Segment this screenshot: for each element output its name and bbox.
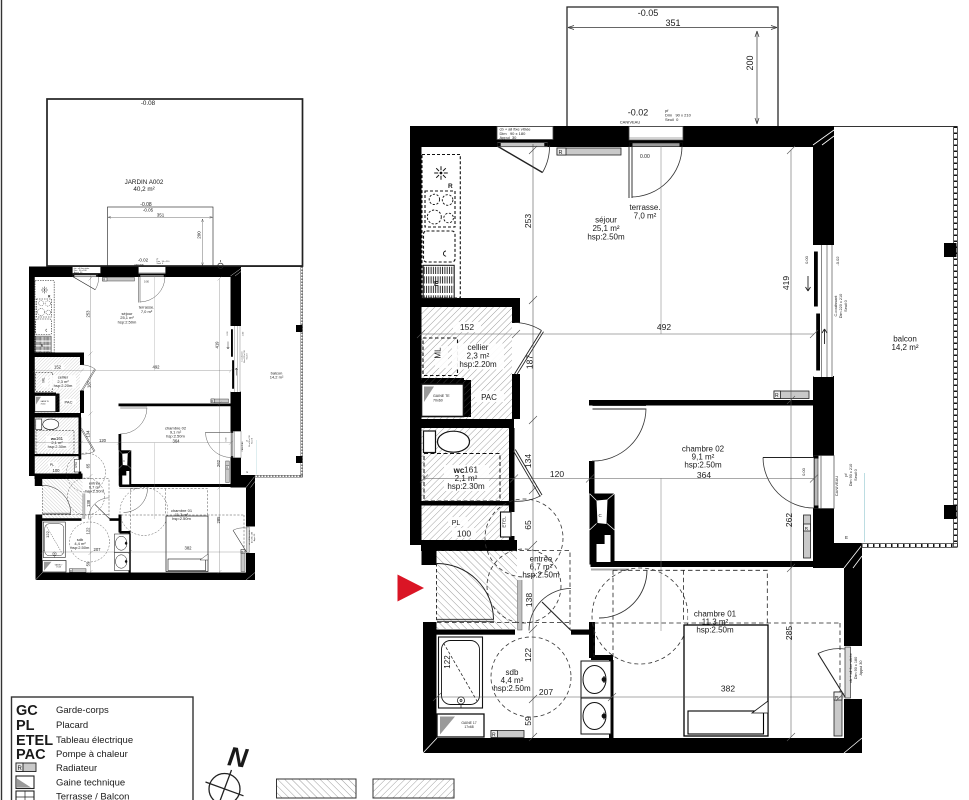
- svg-text:hsp:2.50m: hsp:2.50m: [493, 684, 531, 693]
- svg-text:207: 207: [539, 687, 553, 697]
- svg-text:120: 120: [550, 469, 564, 479]
- svg-text:-0.05: -0.05: [638, 8, 659, 18]
- svg-text:E: E: [434, 281, 439, 288]
- svg-text:351: 351: [665, 18, 680, 28]
- svg-text:JARDIN A002: JARDIN A002: [125, 179, 164, 186]
- svg-text:Seuil 0: Seuil 0: [665, 117, 679, 122]
- svg-text:Radiateur: Radiateur: [56, 763, 97, 774]
- svg-text:40,2 m²: 40,2 m²: [133, 186, 154, 193]
- svg-text:0.00: 0.00: [640, 154, 650, 160]
- svg-text:-0.02: -0.02: [628, 108, 649, 118]
- svg-text:382: 382: [721, 684, 735, 694]
- svg-text:Seuil 0: Seuil 0: [854, 469, 858, 481]
- svg-text:CANIVEAU: CANIVEAU: [620, 120, 641, 125]
- svg-text:152: 152: [460, 322, 474, 332]
- svg-text:hsp:2.50m: hsp:2.50m: [522, 571, 560, 580]
- svg-text:492: 492: [657, 322, 671, 332]
- svg-text:GAINE TE: GAINE TE: [433, 394, 450, 398]
- svg-text:0.00: 0.00: [804, 255, 809, 264]
- svg-text:PAC: PAC: [481, 393, 497, 402]
- svg-text:GC: GC: [16, 703, 38, 719]
- svg-text:PL: PL: [452, 520, 461, 527]
- svg-text:hsp:2.30m: hsp:2.30m: [447, 482, 485, 491]
- svg-text:Garde-corps: Garde-corps: [56, 705, 109, 716]
- svg-text:122: 122: [523, 648, 533, 662]
- svg-text:122: 122: [443, 655, 452, 669]
- svg-text:187: 187: [525, 355, 535, 369]
- svg-text:Tableau électrique: Tableau électrique: [56, 735, 133, 746]
- svg-text:14,2 m²: 14,2 m²: [891, 343, 918, 352]
- svg-text:0.00: 0.00: [801, 467, 806, 476]
- svg-text:ML: ML: [434, 347, 443, 359]
- svg-text:262: 262: [784, 513, 794, 527]
- svg-text:285: 285: [784, 626, 794, 640]
- svg-text:hsp:2.50m: hsp:2.50m: [696, 626, 734, 635]
- svg-text:65: 65: [523, 520, 533, 530]
- svg-text:7,0 m²: 7,0 m²: [634, 212, 657, 221]
- svg-text:PL: PL: [16, 718, 35, 734]
- svg-text:Dim 90 x 180: Dim 90 x 180: [854, 657, 858, 679]
- svg-text:Placard: Placard: [56, 720, 88, 731]
- svg-text:hsp:2.20m: hsp:2.20m: [459, 360, 497, 369]
- svg-text:138: 138: [524, 593, 534, 607]
- svg-text:253: 253: [523, 214, 533, 228]
- svg-text:100: 100: [457, 529, 471, 539]
- svg-text:R: R: [559, 150, 563, 156]
- svg-text:-0.08: -0.08: [140, 202, 152, 208]
- svg-text:200: 200: [745, 55, 755, 70]
- svg-text:-0.02: -0.02: [835, 256, 840, 266]
- svg-text:70x60: 70x60: [433, 399, 443, 403]
- svg-text:Seuil 0: Seuil 0: [844, 300, 848, 312]
- svg-text:17x68: 17x68: [464, 725, 473, 729]
- svg-text:R: R: [492, 733, 496, 739]
- svg-text:419: 419: [781, 276, 791, 290]
- svg-text:C-coulissant: C-coulissant: [834, 295, 838, 317]
- svg-text:Appui 30: Appui 30: [859, 661, 863, 676]
- svg-text:R: R: [448, 183, 453, 190]
- svg-text:ETEL: ETEL: [502, 516, 507, 528]
- svg-text:-0.08: -0.08: [141, 100, 156, 107]
- svg-text:cb + all fixe vitrée: cb + all fixe vitrée: [849, 653, 853, 682]
- svg-text:59: 59: [523, 716, 533, 726]
- svg-text:Dim 90 x 210: Dim 90 x 210: [849, 464, 853, 486]
- svg-text:hsp:2.50m: hsp:2.50m: [684, 461, 722, 470]
- svg-text:CANIVEAU: CANIVEAU: [834, 476, 839, 497]
- svg-text:Terrasse / Balcon: Terrasse / Balcon: [56, 792, 129, 800]
- svg-text:R: R: [775, 393, 779, 399]
- svg-text:161: 161: [464, 465, 478, 475]
- svg-text:Dim 220 x 210: Dim 220 x 210: [839, 294, 843, 318]
- svg-text:E: E: [845, 535, 848, 540]
- svg-text:134: 134: [523, 454, 533, 468]
- svg-text:R: R: [18, 766, 23, 772]
- svg-text:Pompe à chaleur: Pompe à chaleur: [56, 749, 128, 760]
- svg-text:Appui 30: Appui 30: [500, 135, 518, 140]
- svg-text:PAC: PAC: [16, 747, 46, 763]
- svg-text:Gaine technique: Gaine technique: [56, 778, 125, 789]
- svg-text:hsp:2.50m: hsp:2.50m: [587, 233, 625, 242]
